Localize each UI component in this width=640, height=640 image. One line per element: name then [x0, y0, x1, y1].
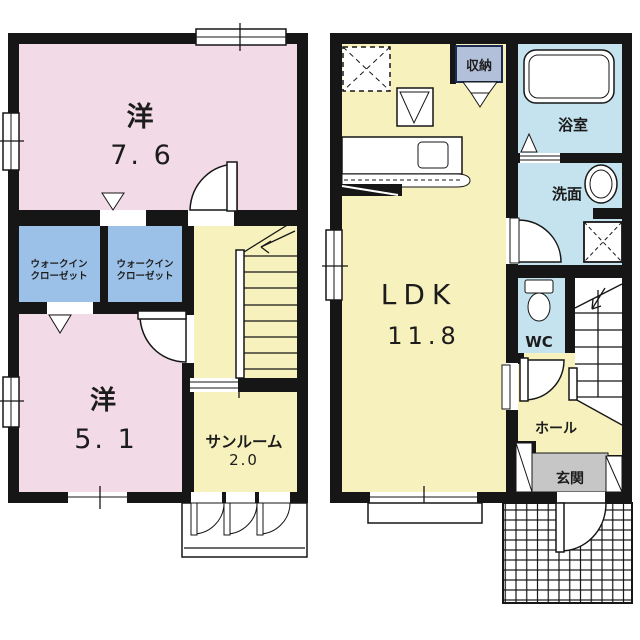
- room-label-ldk: LDK: [381, 278, 458, 311]
- mullion: [255, 492, 259, 503]
- room-label-wic-right-2: クローゼット: [116, 270, 173, 282]
- shoe-cabinet-right: [606, 456, 622, 492]
- kitchen-range: [397, 88, 433, 126]
- bathtub: [524, 50, 614, 103]
- floor-plan-canvas: 洋 7. 6 ウォークイン クローゼット ウォークイン クローゼット 洋 5. …: [0, 0, 640, 640]
- room-label-hall: ホール: [535, 421, 577, 437]
- shoe-cabinet-left: [516, 443, 532, 492]
- room-label-bedroom-7-6: 洋: [127, 101, 154, 133]
- room-label-bedroom-5-1: 洋: [90, 385, 116, 416]
- first-floor-plan: 収納: [322, 33, 632, 603]
- room-size-sunroom: 2.0: [229, 451, 259, 469]
- wic-right-opening: [100, 210, 146, 226]
- room-stair-hall-2f: [194, 226, 297, 378]
- room-label-sunroom: サンルーム: [205, 433, 282, 451]
- bedroom-7-6-door-opening: [188, 210, 234, 226]
- room-label-bathroom: 浴室: [558, 116, 588, 134]
- kitchen-counter: [340, 137, 470, 196]
- room-bedroom-7-6: [19, 44, 297, 210]
- bathroom-door-opening: [520, 153, 560, 163]
- stair-handrail-1f: [569, 368, 577, 400]
- room-label-wic-left-2: クローゼット: [30, 270, 87, 282]
- room-size-bedroom-7-6: 7. 6: [110, 140, 174, 171]
- room-label-wic-right: ウォークイン: [116, 259, 173, 270]
- terrace-step: [368, 503, 482, 523]
- room-size-ldk: 11.8: [387, 322, 460, 350]
- room-label-wic-left: ウォークイン: [30, 259, 87, 270]
- sliding-door-ldk-hall: [502, 363, 518, 410]
- washing-machine: [584, 222, 622, 262]
- room-label-storage: 収納: [466, 58, 492, 74]
- mullion: [222, 492, 226, 503]
- second-floor-plan: 洋 7. 6 ウォークイン クローゼット ウォークイン クローゼット 洋 5. …: [0, 23, 308, 557]
- stair-handrail-2f: [236, 250, 244, 378]
- wall-wc-stairs: [565, 278, 575, 353]
- sunroom-door-opening: [191, 492, 290, 503]
- room-size-bedroom-5-1: 5. 1: [74, 424, 138, 455]
- floor-plan: 洋 7. 6 ウォークイン クローゼット ウォークイン クローゼット 洋 5. …: [0, 0, 640, 640]
- room-label-washroom: 洗面: [552, 185, 582, 203]
- wic-left-opening: [47, 302, 93, 314]
- refrigerator-space: [343, 47, 390, 91]
- room-label-entrance: 玄関: [556, 470, 584, 487]
- room-label-wc: WC: [525, 333, 553, 351]
